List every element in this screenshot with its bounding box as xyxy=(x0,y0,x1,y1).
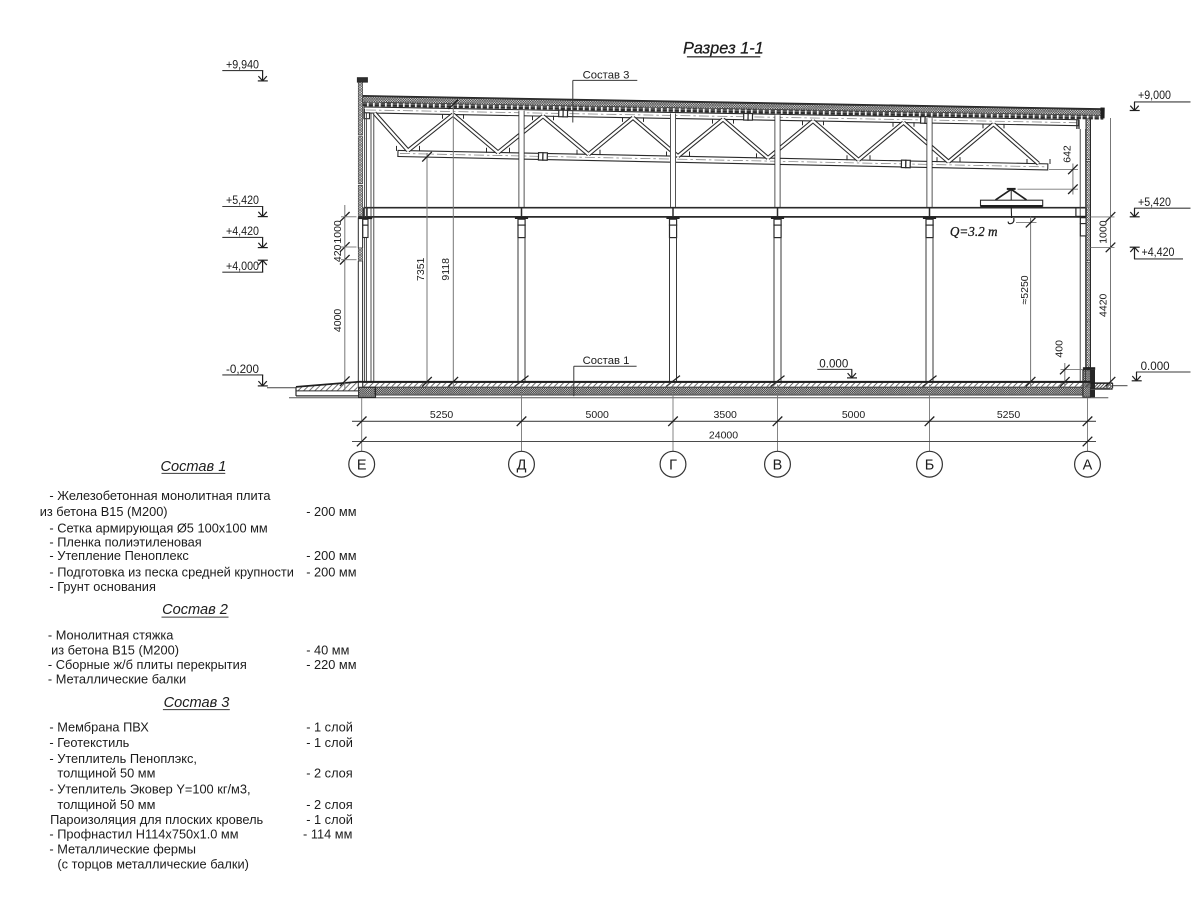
svg-text:из бетона В15 (М200): из бетона В15 (М200) xyxy=(51,642,179,657)
svg-text:Разрез 1-1: Разрез 1-1 xyxy=(683,39,764,57)
svg-text:Состав 3: Состав 3 xyxy=(583,69,630,81)
svg-text:3500: 3500 xyxy=(714,409,738,421)
svg-text:- Утепление Пеноплекс: - Утепление Пеноплекс xyxy=(49,548,189,563)
svg-text:толщиной 50 мм: толщиной 50 мм xyxy=(57,797,155,812)
svg-text:Е: Е xyxy=(357,457,367,473)
svg-text:5000: 5000 xyxy=(842,409,866,421)
svg-text:642: 642 xyxy=(1061,145,1073,163)
svg-text:Д: Д xyxy=(517,457,527,473)
svg-text:-0,200: -0,200 xyxy=(226,362,259,376)
svg-text:1000: 1000 xyxy=(332,220,344,244)
svg-text:0.000: 0.000 xyxy=(1141,359,1170,373)
svg-text:+9,940: +9,940 xyxy=(226,57,259,71)
svg-text:9118: 9118 xyxy=(440,258,452,281)
svg-text:- 220 мм: - 220 мм xyxy=(306,657,356,672)
svg-text:В: В xyxy=(773,457,783,473)
svg-text:4420: 4420 xyxy=(1097,293,1109,317)
svg-text:420: 420 xyxy=(332,244,344,262)
svg-text:- Монолитная стяжка: - Монолитная стяжка xyxy=(48,628,174,643)
svg-text:- Геотекстиль: - Геотекстиль xyxy=(49,735,129,750)
svg-text:Состав 3: Состав 3 xyxy=(164,695,230,711)
svg-text:- Сетка армирующая Ø5 100х100: - Сетка армирующая Ø5 100х100 мм xyxy=(49,520,267,535)
svg-text:Состав 1: Состав 1 xyxy=(160,459,226,475)
svg-text:- 114 мм: - 114 мм xyxy=(303,827,352,842)
svg-text:+4,420: +4,420 xyxy=(1142,245,1175,259)
svg-text:- Утеплитель Пеноплэкс,: - Утеплитель Пеноплэкс, xyxy=(49,751,197,766)
svg-text:(с торцов металлические балки): (с торцов металлические балки) xyxy=(57,857,248,872)
svg-text:- 1 слой: - 1 слой xyxy=(306,812,353,827)
svg-text:- Грунт основания: - Грунт основания xyxy=(49,579,156,594)
svg-text:Пароизоляция для плоских крове: Пароизоляция для плоских кровель xyxy=(50,812,263,827)
svg-text:Q=3.2 m: Q=3.2 m xyxy=(950,224,998,239)
svg-text:400: 400 xyxy=(1054,340,1066,358)
svg-text:- 40 мм: - 40 мм xyxy=(306,642,349,657)
svg-text:0.000: 0.000 xyxy=(819,357,848,371)
svg-text:- 200 мм: - 200 мм xyxy=(306,504,356,519)
svg-text:Г: Г xyxy=(669,457,677,473)
svg-text:А: А xyxy=(1083,457,1093,473)
svg-text:5000: 5000 xyxy=(586,409,610,421)
svg-text:- Профнастил Н114х750х1.0 мм: - Профнастил Н114х750х1.0 мм xyxy=(49,827,238,842)
svg-text:Б: Б xyxy=(925,457,935,473)
svg-text:+5,420: +5,420 xyxy=(226,193,259,207)
svg-text:- 2 слоя: - 2 слоя xyxy=(306,765,353,780)
svg-text:Состав 1: Состав 1 xyxy=(583,355,630,367)
svg-text:- 200 мм: - 200 мм xyxy=(306,548,356,563)
svg-text:толщиной 50 мм: толщиной 50 мм xyxy=(57,765,155,780)
svg-text:+9,000: +9,000 xyxy=(1138,88,1171,102)
svg-text:- Мембрана ПВХ: - Мембрана ПВХ xyxy=(49,720,149,735)
svg-text:+4,000: +4,000 xyxy=(226,259,259,273)
svg-text:4000: 4000 xyxy=(332,309,344,333)
svg-text:≈5250: ≈5250 xyxy=(1019,275,1031,304)
svg-text:7351: 7351 xyxy=(415,257,427,281)
svg-text:24000: 24000 xyxy=(709,429,738,441)
svg-text:- Металлические фермы: - Металлические фермы xyxy=(49,842,196,857)
svg-text:+5,420: +5,420 xyxy=(1138,195,1171,209)
svg-text:5250: 5250 xyxy=(430,409,454,421)
svg-text:- Сборные ж/б плиты перекрытия: - Сборные ж/б плиты перекрытия xyxy=(48,657,247,672)
svg-text:5250: 5250 xyxy=(997,409,1021,421)
svg-text:- 200 мм: - 200 мм xyxy=(306,564,356,579)
svg-text:- Подготовка из песка средней: - Подготовка из песка средней крупности xyxy=(49,564,294,579)
svg-text:Состав 2: Состав 2 xyxy=(162,602,228,618)
svg-text:+4,420: +4,420 xyxy=(226,224,259,238)
svg-text:- Утеплитель Эковер Y=100 кг/м: - Утеплитель Эковер Y=100 кг/м3, xyxy=(49,782,250,797)
svg-text:- Железобетонная монолитная п: - Железобетонная монолитная плита xyxy=(49,488,271,503)
svg-text:из бетона В15 (М200): из бетона В15 (М200) xyxy=(40,504,168,519)
svg-text:- 1 слой: - 1 слой xyxy=(306,720,353,735)
svg-text:- 2 слоя: - 2 слоя xyxy=(306,797,353,812)
svg-text:- Металлические балки: - Металлические балки xyxy=(48,672,186,687)
svg-text:- 1 слой: - 1 слой xyxy=(306,735,353,750)
svg-text:1000: 1000 xyxy=(1097,220,1109,244)
